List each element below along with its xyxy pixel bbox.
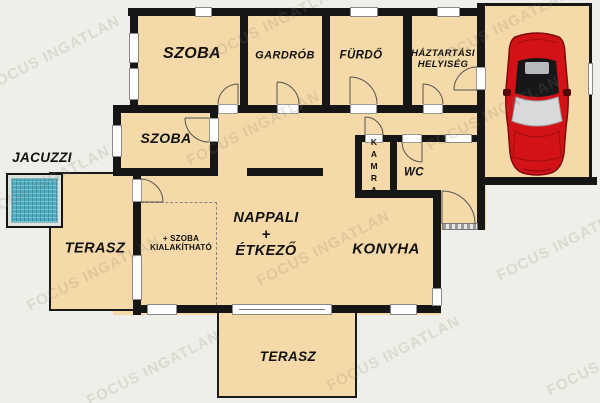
window (445, 134, 472, 143)
floor-plan: SZOBA GARDRÓB FÜRDŐ HÁZTARTÁSI HELYISÉG … (0, 0, 600, 403)
room-label-wc: WC (404, 166, 424, 179)
jacuzzi-water (11, 178, 58, 223)
room-label-haztartasi: HÁZTARTÁSI HELYISÉG (411, 49, 475, 71)
wall (128, 8, 485, 16)
wall (477, 177, 597, 185)
wall (477, 3, 485, 230)
door-opening (423, 104, 443, 114)
wall (480, 3, 592, 6)
window (132, 255, 142, 300)
window (432, 288, 442, 306)
wall (322, 16, 330, 105)
red-car-icon (503, 31, 571, 177)
door-opening (209, 118, 219, 142)
window (147, 304, 177, 315)
wall (113, 168, 218, 176)
room-label-terasz-left: TERASZ (65, 241, 125, 258)
room-label-nappali-etkezo: NAPPALI + ÉTKEZŐ (233, 210, 298, 260)
window (390, 304, 417, 315)
window (588, 63, 593, 95)
sliding-door (232, 304, 332, 315)
door-opening (218, 104, 238, 114)
room-label-szoba-top: SZOBA (163, 45, 221, 63)
room-label-terasz-bottom: TERASZ (260, 349, 316, 365)
watermark-text: FOCUS INGATLAN (544, 318, 600, 400)
wall (240, 16, 248, 105)
wall (247, 168, 323, 176)
jacuzzi-frame (8, 175, 61, 226)
room-label-furdo: FÜRDŐ (340, 49, 383, 62)
door-opening (402, 134, 422, 143)
door-opening (277, 104, 299, 114)
wall (355, 190, 441, 198)
room-label-jacuzzi: JACUZZI (12, 150, 72, 166)
watermark-text: FOCUS INGATLAN (0, 13, 123, 95)
optional-room-outline (141, 202, 217, 305)
window (129, 33, 139, 63)
jacuzzi-pool (6, 173, 63, 228)
room-label-szoba-middle: SZOBA (141, 130, 192, 146)
watermark-text: FOCUS INGATLAN (84, 328, 223, 403)
watermark-text: FOCUS INGATLAN (494, 203, 600, 285)
room-label-gardrob: GARDRÓB (255, 50, 315, 63)
window (437, 7, 460, 17)
door-opening (476, 67, 486, 90)
entrance-door (442, 223, 478, 230)
window (112, 125, 122, 157)
wall (390, 135, 397, 198)
door-opening (132, 179, 142, 202)
room-label-szoba-kialakithato: + SZOBA KIALAKÍTHATÓ (150, 234, 212, 252)
window (350, 7, 378, 17)
room-label-kamra: KAMRA (369, 137, 379, 197)
window (129, 68, 139, 100)
room-label-konyha: KONYHA (352, 240, 419, 257)
window (195, 7, 212, 17)
door-opening (350, 104, 377, 114)
wall (355, 135, 362, 198)
